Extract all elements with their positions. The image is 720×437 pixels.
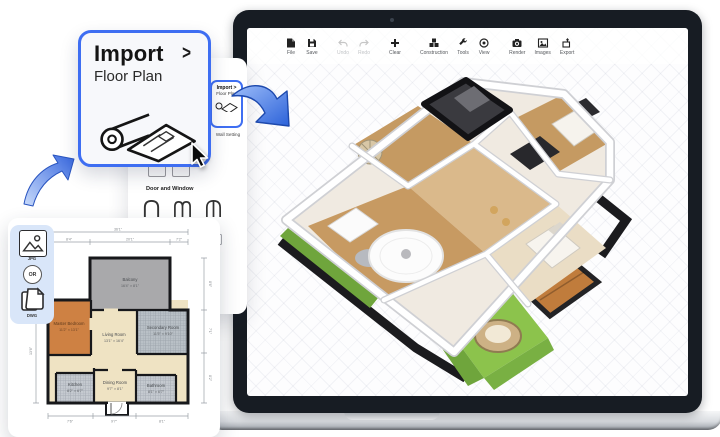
laptop: File Save Undo Redo Clear — [233, 10, 702, 413]
house-3d-render — [258, 60, 688, 396]
laptop-screen: File Save Undo Redo Clear — [247, 28, 688, 396]
construction-icon — [428, 37, 440, 49]
svg-text:16'4" × 8'1": 16'4" × 8'1" — [121, 284, 140, 288]
toolbar-label: Export — [560, 50, 574, 56]
undo-icon — [337, 37, 349, 49]
webcam-dot — [390, 18, 394, 22]
export-icon — [561, 37, 573, 49]
scene: File Save Undo Redo Clear — [0, 0, 720, 437]
small-blue-arrow — [16, 152, 78, 210]
svg-text:8'2": 8'2" — [208, 375, 212, 382]
undo-button[interactable]: Undo — [337, 37, 349, 56]
svg-text:9'7" × 8'1": 9'7" × 8'1" — [107, 387, 124, 391]
save-icon — [306, 37, 318, 49]
toolbar-label: Redo — [358, 50, 370, 56]
svg-text:7'6": 7'6" — [67, 420, 74, 424]
clear-button[interactable]: Clear — [389, 37, 401, 56]
svg-text:Master Bedroom: Master Bedroom — [54, 321, 85, 326]
svg-text:8'6": 8'6" — [208, 281, 212, 288]
toolbar-label: Render — [509, 50, 525, 56]
callout-title: Import — [94, 41, 164, 67]
clear-icon — [389, 37, 401, 49]
toolbar-label: Construction — [420, 50, 448, 56]
toolbar-label: Clear — [389, 50, 401, 56]
redo-button[interactable]: Redo — [358, 37, 370, 56]
svg-text:Bathroom: Bathroom — [147, 383, 166, 388]
svg-text:8'2" × 6'7": 8'2" × 6'7" — [67, 389, 84, 393]
svg-text:13'1" × 16'4": 13'1" × 16'4" — [104, 339, 125, 343]
file-icon — [285, 37, 297, 49]
svg-text:8'1" × 6'7": 8'1" × 6'7" — [148, 390, 165, 394]
images-icon — [537, 37, 549, 49]
construction-button[interactable]: Construction — [420, 37, 448, 56]
toolbar-label: View — [479, 50, 490, 56]
toolbar-label: File — [287, 50, 295, 56]
svg-text:20'1": 20'1" — [126, 238, 135, 242]
callout-subtitle: Floor Plan — [81, 67, 208, 85]
dwg-label: DWG — [10, 313, 54, 318]
big-blue-arrow — [230, 80, 296, 136]
save-button[interactable]: Save — [306, 37, 318, 56]
import-format-panel: JPG OR DWG — [10, 225, 54, 324]
jpg-image-icon — [19, 230, 47, 257]
svg-text:Dining Room: Dining Room — [103, 380, 128, 385]
or-badge: OR — [23, 265, 42, 284]
svg-text:11'2" × 13'1": 11'2" × 13'1" — [59, 328, 79, 332]
svg-text:8'4": 8'4" — [66, 238, 73, 242]
chevron-right-icon: > — [182, 43, 191, 65]
entry-vestibule — [106, 403, 128, 415]
file-button[interactable]: File — [285, 37, 297, 56]
render-camera-icon — [511, 37, 523, 49]
callout-title-row: Import > — [81, 33, 208, 67]
svg-text:9'7": 9'7" — [111, 420, 118, 424]
section-door-and-window: Door and Window — [146, 186, 194, 192]
svg-text:Balcony: Balcony — [123, 277, 139, 282]
double-door-icon[interactable] — [173, 198, 192, 219]
svg-text:Secondary Room: Secondary Room — [147, 325, 180, 330]
svg-text:Living Room: Living Room — [102, 332, 126, 337]
export-button[interactable]: Export — [560, 37, 574, 56]
toolbar-label: Images — [534, 50, 550, 56]
tools-icon — [457, 37, 469, 49]
door-catalog-row — [142, 198, 223, 219]
window-arch-icon[interactable] — [204, 198, 223, 219]
mouse-cursor-icon — [190, 142, 212, 170]
dwg-file-icon — [19, 286, 46, 313]
view-button[interactable]: View — [478, 37, 490, 56]
toolbar-label: Tools — [457, 50, 469, 56]
view-icon — [478, 37, 490, 49]
toolbar-label: Undo — [337, 50, 349, 56]
svg-text:8'1": 8'1" — [159, 420, 166, 424]
svg-text:36'1": 36'1" — [114, 228, 123, 232]
app-toolbar: File Save Undo Redo Clear — [247, 28, 688, 64]
svg-text:Kitchen: Kitchen — [68, 382, 83, 387]
svg-text:7'2": 7'2" — [176, 238, 183, 242]
floor-plan-2d-card: JPG OR DWG — [8, 218, 220, 437]
svg-text:11'5" × 9'10": 11'5" × 9'10" — [153, 332, 173, 336]
render-button[interactable]: Render — [509, 37, 525, 56]
arched-door-icon[interactable] — [142, 198, 161, 219]
blueprint-roll-icon — [97, 89, 203, 163]
jpg-label: JPG — [10, 256, 54, 261]
images-button[interactable]: Images — [534, 37, 550, 56]
svg-text:7'1": 7'1" — [208, 328, 212, 335]
redo-icon — [358, 37, 370, 49]
laptop-base — [208, 411, 720, 430]
svg-text:13'6": 13'6" — [29, 346, 33, 355]
tools-button[interactable]: Tools — [457, 37, 469, 56]
toolbar-label: Save — [306, 50, 317, 56]
